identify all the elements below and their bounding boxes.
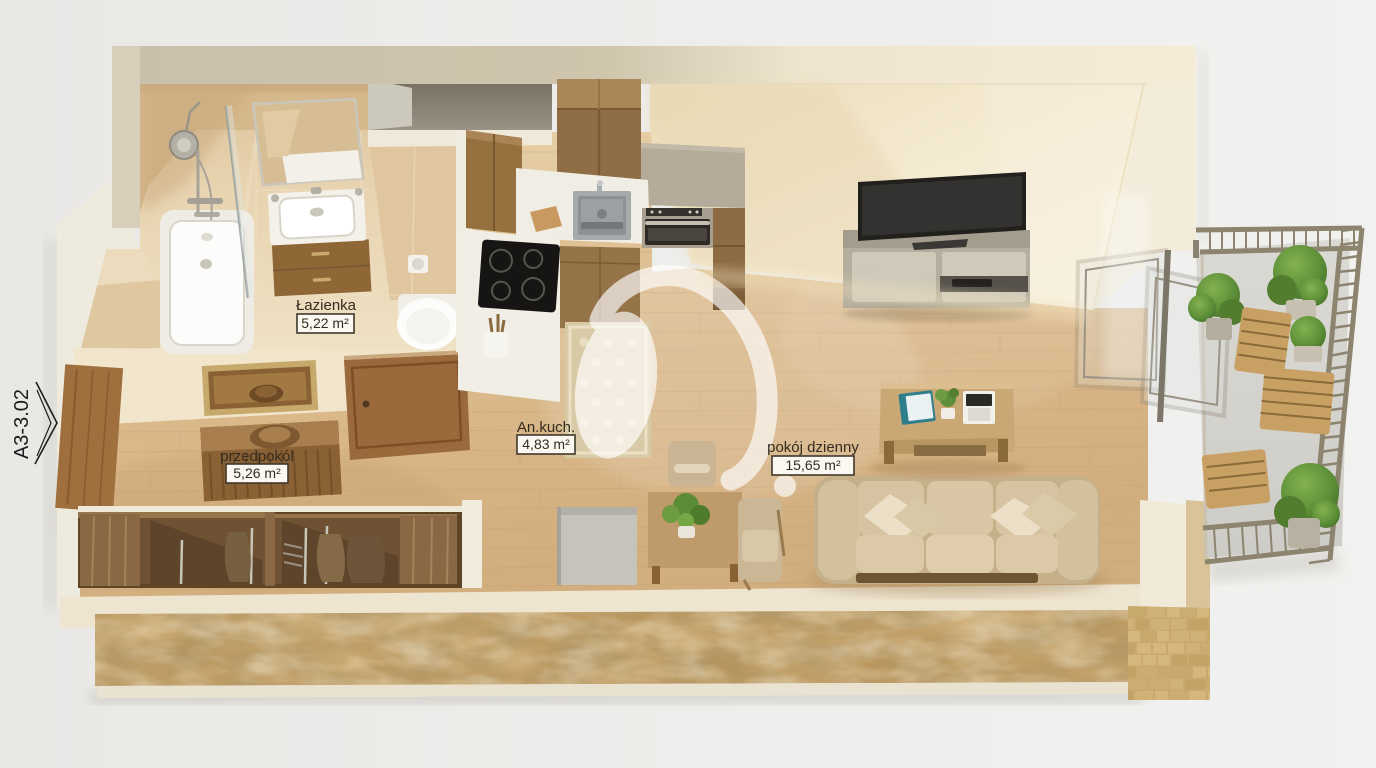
svg-text:4,83 m²: 4,83 m² [522, 436, 570, 452]
svg-text:pokój dzienny: pokój dzienny [767, 439, 859, 456]
svg-text:5,26 m²: 5,26 m² [233, 465, 281, 481]
svg-text:An.kuch.: An.kuch. [517, 419, 575, 436]
svg-text:5,22 m²: 5,22 m² [301, 315, 349, 331]
svg-text:przedpokól: przedpokól [220, 448, 293, 465]
svg-text:A3-3.02: A3-3.02 [11, 389, 33, 459]
svg-text:15,65 m²: 15,65 m² [785, 457, 841, 473]
svg-text:Łazienka: Łazienka [296, 297, 357, 314]
